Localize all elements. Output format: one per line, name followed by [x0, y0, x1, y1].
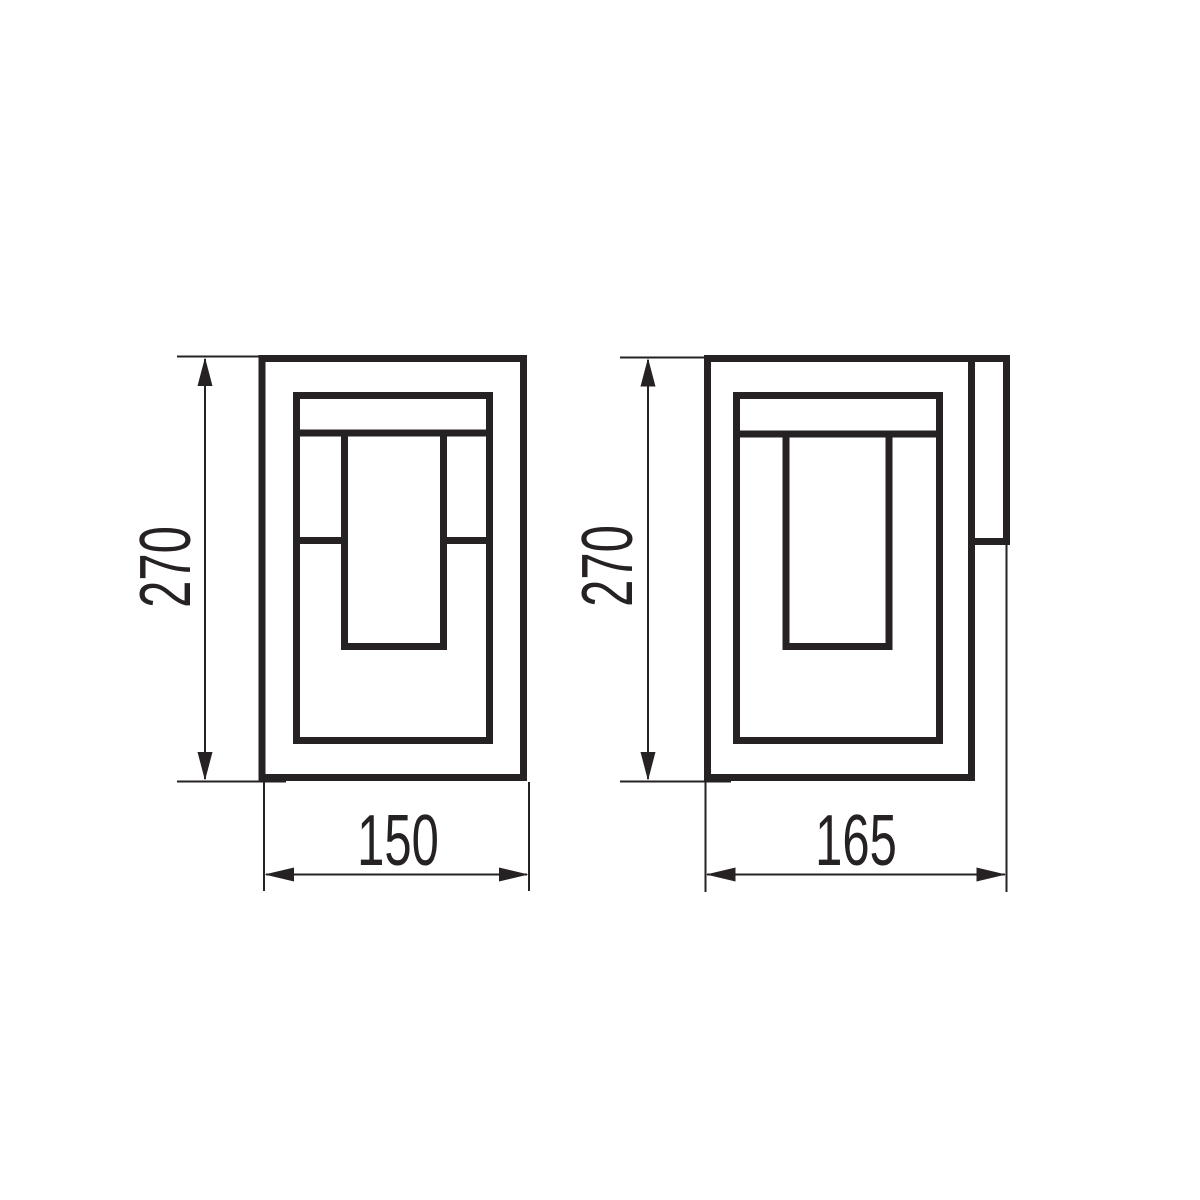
side-outer-frame: [708, 359, 972, 778]
front-width-arrow-right-icon: [499, 868, 529, 882]
front-height-arrow-up-icon: [198, 358, 213, 387]
front-diffuser-window: [345, 433, 444, 647]
side-width-arrow-left-icon: [706, 868, 736, 882]
front-view-group: [262, 359, 524, 778]
front-inner-frame: [297, 396, 490, 741]
side-view-group: [708, 359, 1007, 778]
side-inner-frame: [737, 396, 940, 741]
side-wall-bracket: [972, 359, 1007, 542]
front-height-arrow-down-icon: [198, 752, 213, 781]
front-width-label: 150: [357, 801, 439, 882]
side-height-label: 270: [568, 525, 649, 607]
side-width-label: 165: [815, 801, 897, 882]
front-outer-frame: [262, 359, 524, 778]
side-width-arrow-right-icon: [977, 868, 1007, 882]
front-width-arrow-left-icon: [265, 868, 295, 882]
side-height-arrow-up-icon: [641, 358, 656, 387]
technical-drawing-canvas: 270 150 270 165: [0, 0, 1200, 1200]
dimension-drawing-svg: 270 150 270 165: [0, 0, 1200, 1200]
side-height-arrow-down-icon: [641, 752, 656, 781]
front-height-label: 270: [126, 526, 207, 608]
side-diffuser-window: [786, 434, 889, 647]
